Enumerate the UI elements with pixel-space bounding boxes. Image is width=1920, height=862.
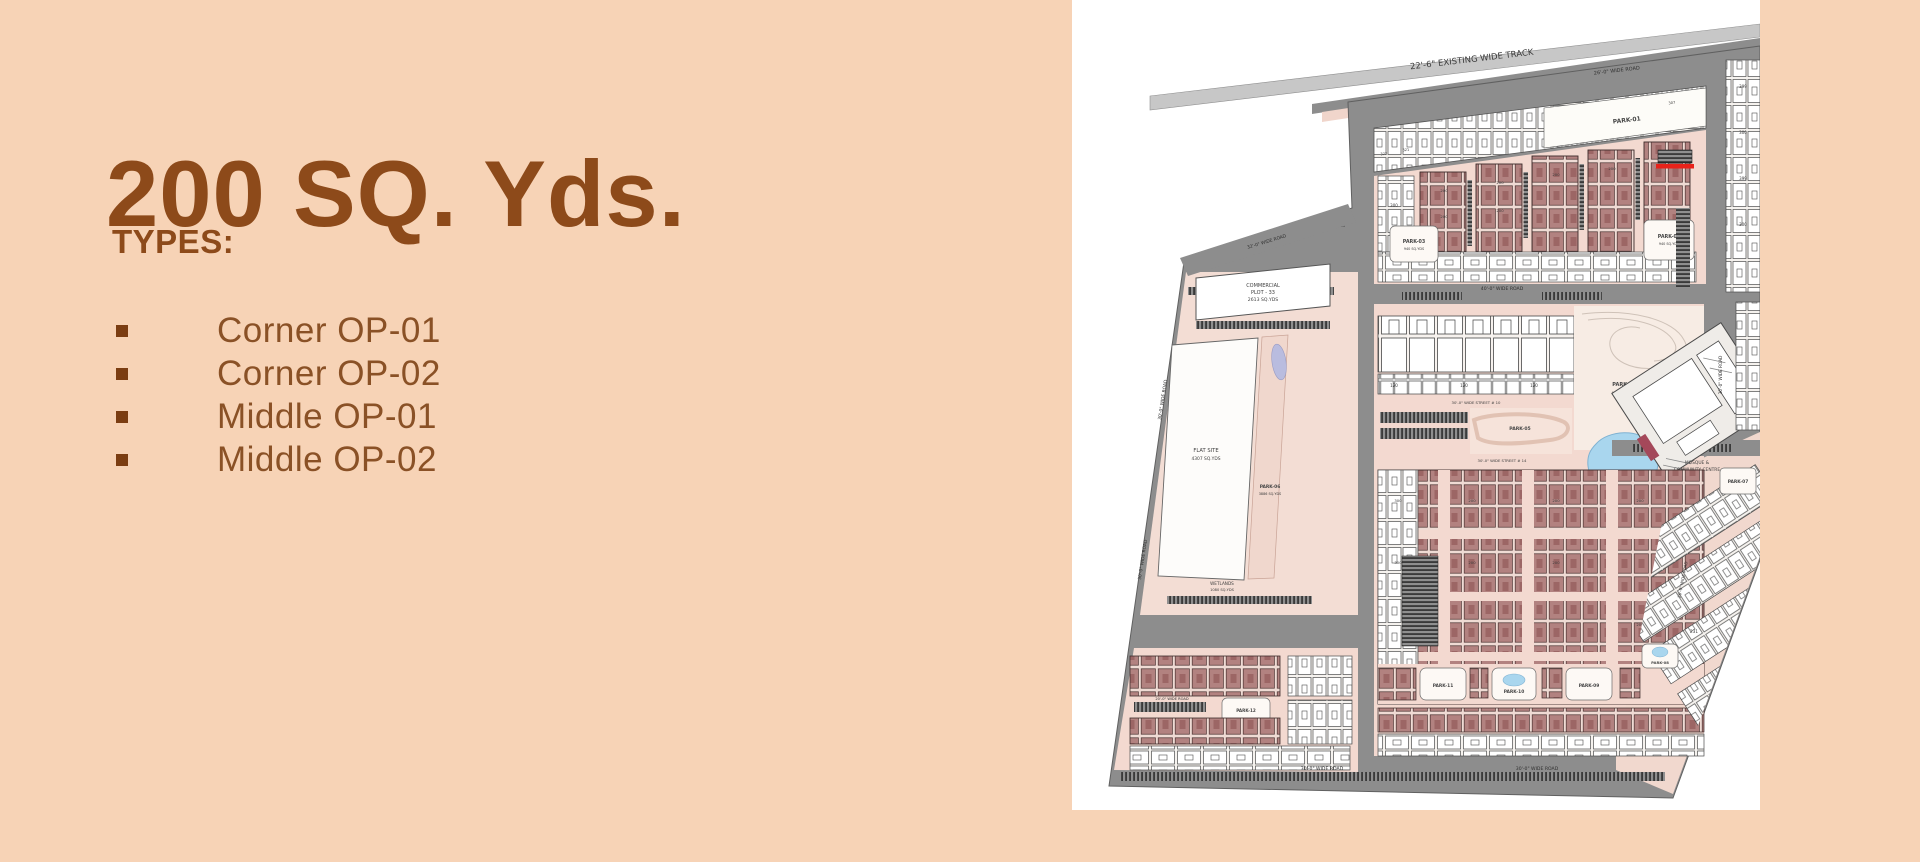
types-bullet-list: Corner OP-01 Corner OP-02 Middle OP-01 M… bbox=[116, 309, 441, 481]
road-30-right-label: 30'-0" WIDE ROAD bbox=[1718, 356, 1723, 395]
list-item: Middle OP-02 bbox=[116, 438, 441, 481]
plot-number: 322 bbox=[1380, 152, 1387, 157]
commercial-label-2: PLOT - 33 bbox=[1251, 290, 1275, 296]
plot-number: 300 bbox=[1739, 222, 1747, 227]
list-item: Corner OP-02 bbox=[116, 352, 441, 395]
bullet-square-icon bbox=[116, 411, 128, 423]
plot-number: 321 bbox=[1402, 148, 1409, 153]
plot-row-120 bbox=[1378, 374, 1574, 394]
bullet-label: Middle OP-02 bbox=[217, 440, 437, 480]
plot-number: 399 bbox=[1739, 84, 1747, 89]
park-06-area-label: 3886 SQ.YDS bbox=[1259, 492, 1281, 496]
road-30-bottom-label-2: 30'-0" WIDE ROAD bbox=[1516, 766, 1559, 772]
plot-grid-red bbox=[1542, 668, 1562, 698]
plot-number: 300 bbox=[1394, 560, 1402, 565]
park-10-label: PARK-10 bbox=[1504, 689, 1525, 695]
plot-number: 120 bbox=[1530, 383, 1538, 388]
roadside-parking bbox=[1542, 292, 1602, 300]
plot-number: 300 bbox=[1390, 203, 1398, 208]
commercial-label-3: 2613 SQ.YDS bbox=[1248, 297, 1278, 303]
lane-parking bbox=[1580, 164, 1585, 230]
car-parking-block bbox=[1402, 556, 1438, 646]
park-06-label: PARK-06 bbox=[1260, 484, 1281, 490]
plot-number: 200 bbox=[1468, 560, 1476, 565]
bullet-square-icon bbox=[116, 454, 128, 466]
plot-grid-red bbox=[1130, 718, 1280, 744]
roadside-parking bbox=[1196, 321, 1330, 329]
bullet-label: Corner OP-02 bbox=[217, 354, 441, 394]
wetlands-label-1: WETLANDS bbox=[1210, 581, 1234, 586]
slide-canvas: { "slide": { "title": "200 SQ. Yds.", "s… bbox=[0, 0, 1920, 862]
plot-number: 231 bbox=[1690, 629, 1698, 634]
plot-grid-red bbox=[1532, 156, 1578, 252]
plot-number: 300 bbox=[1739, 130, 1747, 135]
plot-grid-white bbox=[1288, 656, 1352, 696]
plot-number: 120 bbox=[1390, 383, 1398, 388]
plot-grid-red bbox=[1130, 656, 1280, 696]
plot-number: 120 bbox=[1460, 383, 1468, 388]
park-08-pond bbox=[1652, 647, 1668, 657]
flat-site-label-1: FLAT SITE bbox=[1193, 448, 1218, 454]
plot-grid-red bbox=[1620, 668, 1640, 698]
roadside-parking bbox=[1167, 596, 1312, 604]
plot-number: 200 bbox=[1636, 498, 1644, 503]
plot-number: 399 bbox=[1739, 176, 1747, 181]
roadside-parking bbox=[1402, 292, 1462, 300]
plot-number: 300 bbox=[1394, 498, 1402, 503]
plot-number: 200 bbox=[1440, 188, 1448, 193]
mosque-label-1: MOSQUE & bbox=[1685, 460, 1710, 466]
bottom-road-parking bbox=[1120, 772, 1665, 781]
wetlands-label-2: 1080 SQ.YDS bbox=[1210, 588, 1235, 592]
lane-pink bbox=[1378, 530, 1704, 539]
site-plan-svg: PARK-01 322 321 307 300 300 200 200 200 … bbox=[1072, 0, 1760, 810]
list-item: Middle OP-01 bbox=[116, 395, 441, 438]
flat-site-label-2: 4307 SQ.YDS bbox=[1191, 456, 1220, 462]
plot-number: 307 bbox=[1668, 101, 1675, 106]
plot-grid-red bbox=[1378, 708, 1704, 732]
street-10-label: 30'-0" WIDE STREET # 10 bbox=[1452, 400, 1502, 405]
roadside-parking bbox=[1134, 702, 1206, 712]
lane-parking bbox=[1636, 158, 1641, 220]
road-30-bottom-label-1: 30'-0" WIDE ROAD bbox=[1301, 766, 1344, 772]
plot-number: 200 bbox=[1468, 498, 1476, 503]
plot-grid-red bbox=[1470, 668, 1488, 698]
list-item: Corner OP-01 bbox=[116, 309, 441, 352]
car-parking bbox=[1380, 428, 1468, 439]
east-plot-column-lower bbox=[1736, 302, 1760, 430]
bullet-label: Corner OP-01 bbox=[217, 311, 441, 351]
park-10-pond bbox=[1503, 674, 1525, 686]
subtitle-types: TYPES: bbox=[112, 223, 234, 261]
plot-number: 200 bbox=[1496, 208, 1504, 213]
park-03-area-label: 940 SQ.YDS bbox=[1404, 247, 1424, 251]
bullet-square-icon bbox=[116, 325, 128, 337]
plot-number: 200 bbox=[1608, 166, 1616, 171]
plot-number: 200 bbox=[1552, 172, 1560, 177]
bullet-label: Middle OP-01 bbox=[217, 397, 437, 437]
roadside-parking bbox=[1676, 208, 1690, 288]
plot-grid-red bbox=[1378, 668, 1416, 700]
plot-number: 200 bbox=[1440, 214, 1448, 219]
street-14-label: 30'-0" WIDE STREET # 14 bbox=[1478, 458, 1528, 463]
lane-parking bbox=[1524, 172, 1529, 238]
entrance-gate bbox=[1658, 150, 1692, 163]
plot-grid-white bbox=[1288, 700, 1352, 744]
car-parking bbox=[1380, 412, 1468, 423]
plot-number: 200 bbox=[1496, 180, 1504, 185]
plot-number: 200 bbox=[1552, 560, 1560, 565]
park-05-label: PARK-05 bbox=[1509, 426, 1531, 432]
park-03-label: PARK-03 bbox=[1403, 239, 1425, 245]
duplex-plot-row bbox=[1378, 316, 1574, 372]
park-12-label: PARK-12 bbox=[1236, 708, 1256, 713]
plot-number: 200 bbox=[1552, 498, 1560, 503]
bullet-square-icon bbox=[116, 368, 128, 380]
gate-red-marker bbox=[1656, 164, 1694, 169]
road-20-label: 20'-0" WIDE ROAD bbox=[1155, 697, 1188, 701]
park-07-label: PARK-07 bbox=[1728, 479, 1749, 485]
site-plan-image: PARK-01 322 321 307 300 300 200 200 200 … bbox=[1072, 0, 1760, 810]
lane-parking bbox=[1468, 180, 1473, 246]
commercial-label-1: COMMERCIAL bbox=[1246, 283, 1280, 289]
park-09-label: PARK-09 bbox=[1579, 683, 1600, 689]
road-40-label: 40'-0" WIDE ROAD bbox=[1481, 286, 1524, 292]
plot-row-white bbox=[1378, 734, 1704, 756]
park-11-label: PARK-11 bbox=[1433, 683, 1454, 689]
park-08-label: PARK-08 bbox=[1651, 660, 1669, 665]
